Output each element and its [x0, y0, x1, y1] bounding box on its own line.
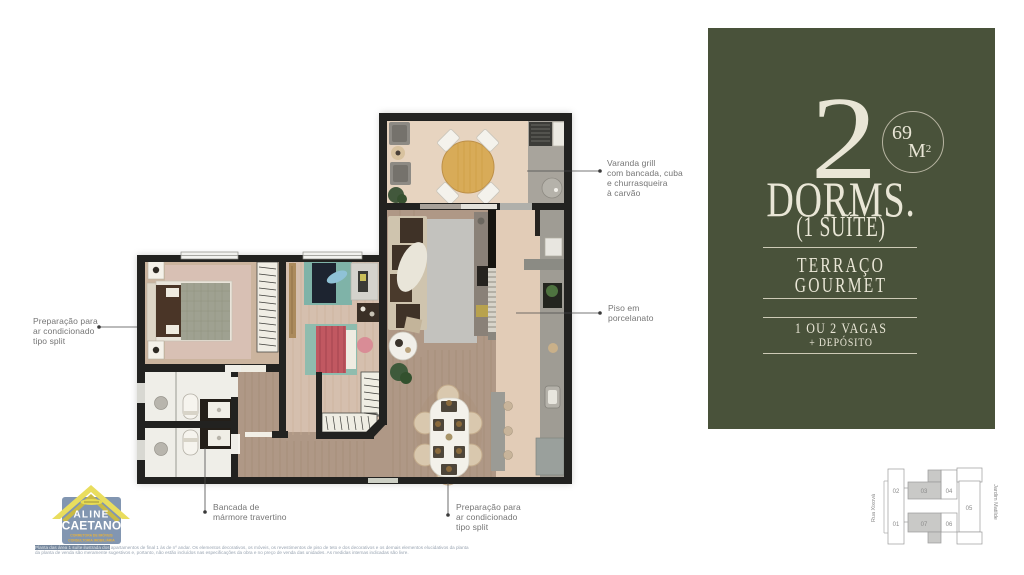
svg-text:06: 06 [946, 522, 953, 528]
svg-text:05: 05 [966, 506, 973, 512]
svg-text:CONSULTORIA IMOBILIÁRIA: CONSULTORIA IMOBILIÁRIA [68, 538, 115, 543]
svg-text:01: 01 [893, 522, 900, 528]
svg-text:CAETANO: CAETANO [62, 519, 122, 533]
svg-text:03: 03 [921, 489, 928, 495]
svg-text:07: 07 [921, 522, 928, 528]
svg-text:02: 02 [893, 489, 900, 495]
svg-text:Rua Xixová: Rua Xixová [871, 493, 877, 522]
svg-text:Jardim Matilde: Jardim Matilde [992, 484, 998, 520]
svg-text:04: 04 [946, 489, 953, 495]
svg-text:CORRETORA DE IMÓVEIS: CORRETORA DE IMÓVEIS [70, 533, 113, 538]
